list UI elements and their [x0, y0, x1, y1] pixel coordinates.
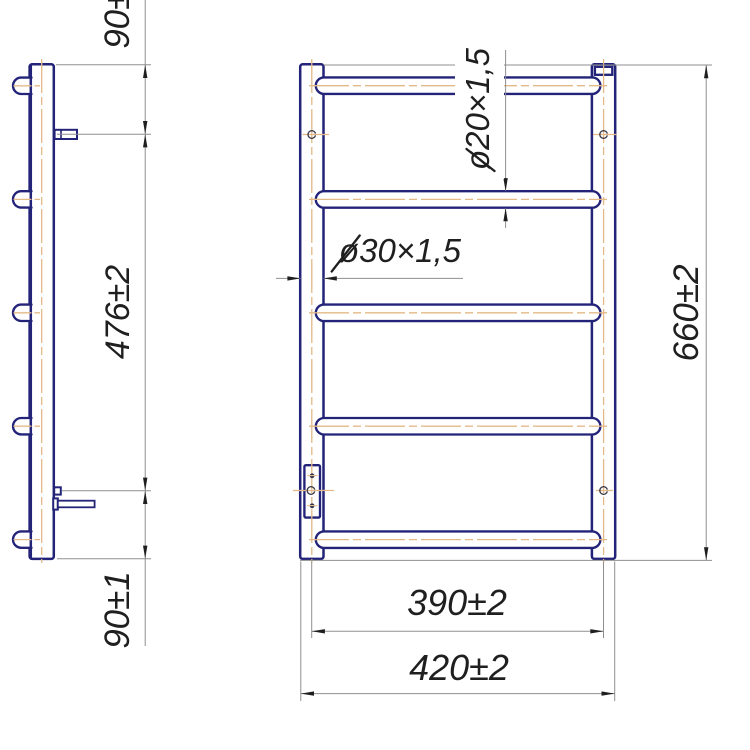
svg-text:420±2: 420±2 — [409, 647, 509, 688]
svg-text:390±2: 390±2 — [407, 582, 507, 623]
svg-text:660±2: 660±2 — [667, 264, 706, 361]
svg-text:90±1: 90±1 — [98, 571, 137, 649]
svg-text:90±1: 90±1 — [98, 0, 137, 49]
svg-text:476±2: 476±2 — [99, 265, 137, 359]
svg-text:ø20×1,5: ø20×1,5 — [459, 47, 496, 170]
